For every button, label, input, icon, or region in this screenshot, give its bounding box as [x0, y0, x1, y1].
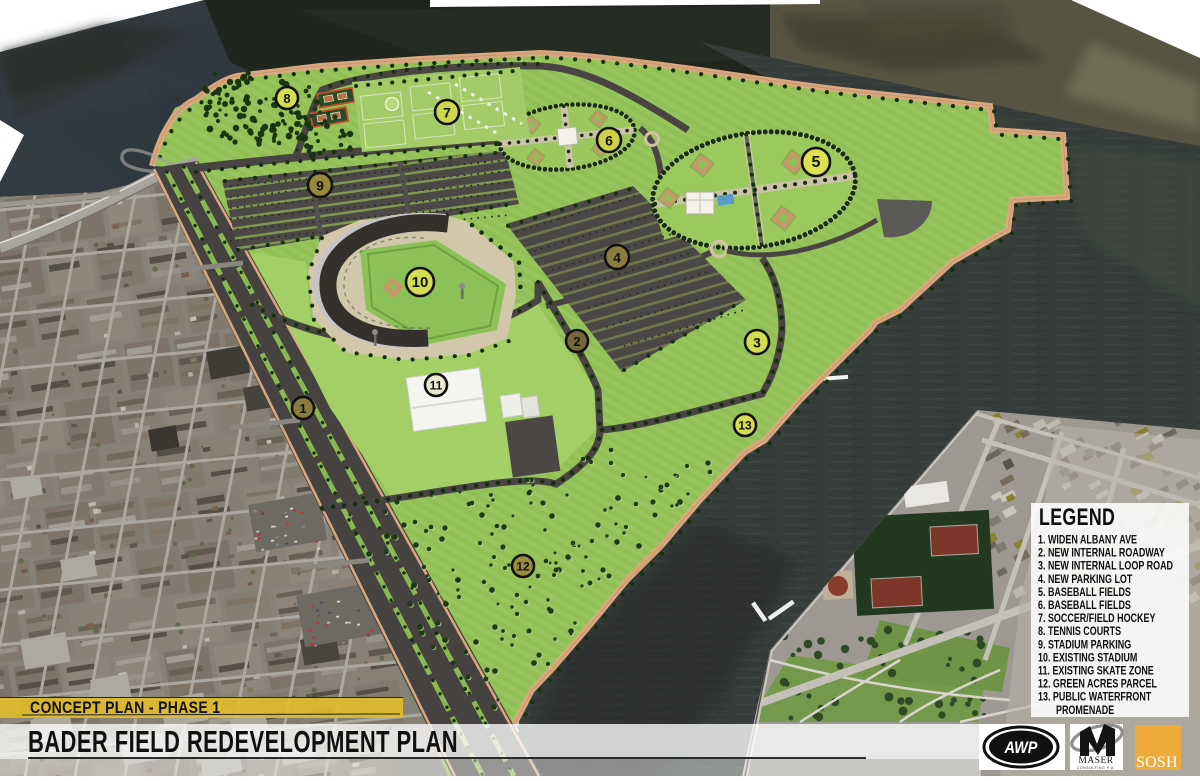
svg-text:9: 9: [316, 178, 324, 194]
svg-text:SOSH: SOSH: [1136, 754, 1178, 771]
svg-text:3: 3: [753, 335, 761, 351]
svg-text:5. BASEBALL FIELDS: 5. BASEBALL FIELDS: [1038, 587, 1131, 599]
svg-text:8. TENNIS COURTS: 8. TENNIS COURTS: [1038, 626, 1121, 638]
svg-text:12: 12: [516, 560, 530, 574]
svg-text:MASER: MASER: [1078, 756, 1113, 766]
svg-text:3. NEW INTERNAL LOOP ROAD: 3. NEW INTERNAL LOOP ROAD: [1038, 561, 1173, 573]
svg-text:1. WIDEN ALBANY AVE: 1. WIDEN ALBANY AVE: [1038, 535, 1137, 547]
svg-text:12. GREEN ACRES PARCEL: 12. GREEN ACRES PARCEL: [1038, 679, 1157, 691]
svg-text:6: 6: [605, 133, 613, 149]
svg-text:CONSULTING P.A.: CONSULTING P.A.: [1077, 766, 1116, 770]
svg-text:2: 2: [573, 334, 580, 349]
svg-text:10. EXISTING STADIUM: 10. EXISTING STADIUM: [1038, 652, 1137, 664]
svg-text:CONCEPT PLAN - PHASE 1: CONCEPT PLAN - PHASE 1: [30, 699, 221, 717]
svg-text:6. BASEBALL FIELDS: 6. BASEBALL FIELDS: [1038, 600, 1131, 612]
svg-text:11: 11: [430, 379, 443, 393]
svg-text:9. STADIUM PARKING: 9. STADIUM PARKING: [1038, 639, 1131, 651]
svg-text:AWP: AWP: [1004, 739, 1038, 757]
svg-text:13: 13: [738, 419, 752, 433]
svg-text:1: 1: [299, 401, 306, 416]
svg-text:2. NEW INTERNAL ROADWAY: 2. NEW INTERNAL ROADWAY: [1038, 548, 1165, 560]
svg-text:PROMENADE: PROMENADE: [1056, 705, 1114, 717]
svg-text:11. EXISTING SKATE ZONE: 11. EXISTING SKATE ZONE: [1038, 666, 1154, 678]
svg-text:10: 10: [412, 274, 429, 291]
svg-text:13. PUBLIC WATERFRONT: 13. PUBLIC WATERFRONT: [1038, 692, 1152, 704]
svg-text:LEGEND: LEGEND: [1039, 505, 1115, 531]
svg-text:7: 7: [443, 105, 451, 121]
svg-text:8: 8: [283, 91, 290, 106]
svg-text:BADER FIELD REDEVELOPMENT PLAN: BADER FIELD REDEVELOPMENT PLAN: [28, 724, 458, 758]
svg-text:5: 5: [812, 154, 821, 171]
svg-text:4: 4: [613, 250, 621, 266]
svg-text:7. SOCCER/FIELD HOCKEY: 7. SOCCER/FIELD HOCKEY: [1038, 613, 1156, 625]
svg-text:4. NEW PARKING LOT: 4. NEW PARKING LOT: [1038, 574, 1133, 586]
